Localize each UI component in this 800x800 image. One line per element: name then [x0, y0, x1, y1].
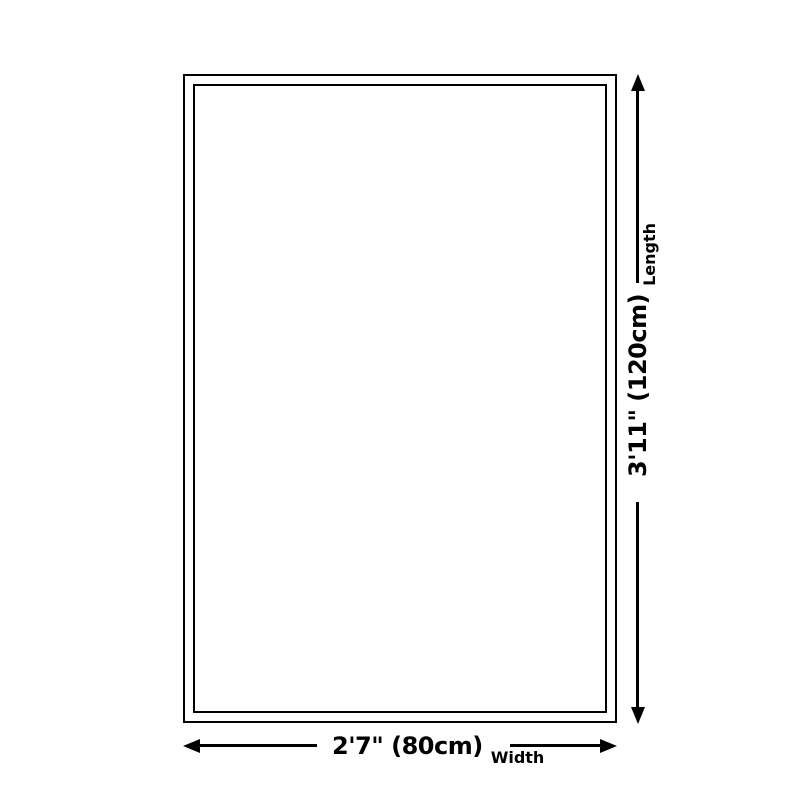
arrow-right-icon	[600, 739, 617, 753]
dimension-diagram: 3'11" (120cm) Length 2'7" (80cm) Width	[0, 0, 800, 800]
width-dimension-line-right	[510, 744, 602, 747]
arrow-down-icon	[631, 707, 645, 724]
width-dimension-line-left	[198, 744, 317, 747]
rug-outline-outer	[183, 74, 617, 723]
width-value: 2'7" (80cm)	[332, 732, 483, 760]
length-value: 3'11" (120cm)	[624, 294, 652, 477]
length-dimension-label: 3'11" (120cm) Length	[616, 237, 660, 477]
length-axis-label: Length	[640, 223, 659, 286]
width-axis-label: Width	[491, 748, 545, 767]
rug-outline-inner	[193, 84, 607, 713]
length-dimension-line-bottom	[636, 502, 639, 708]
